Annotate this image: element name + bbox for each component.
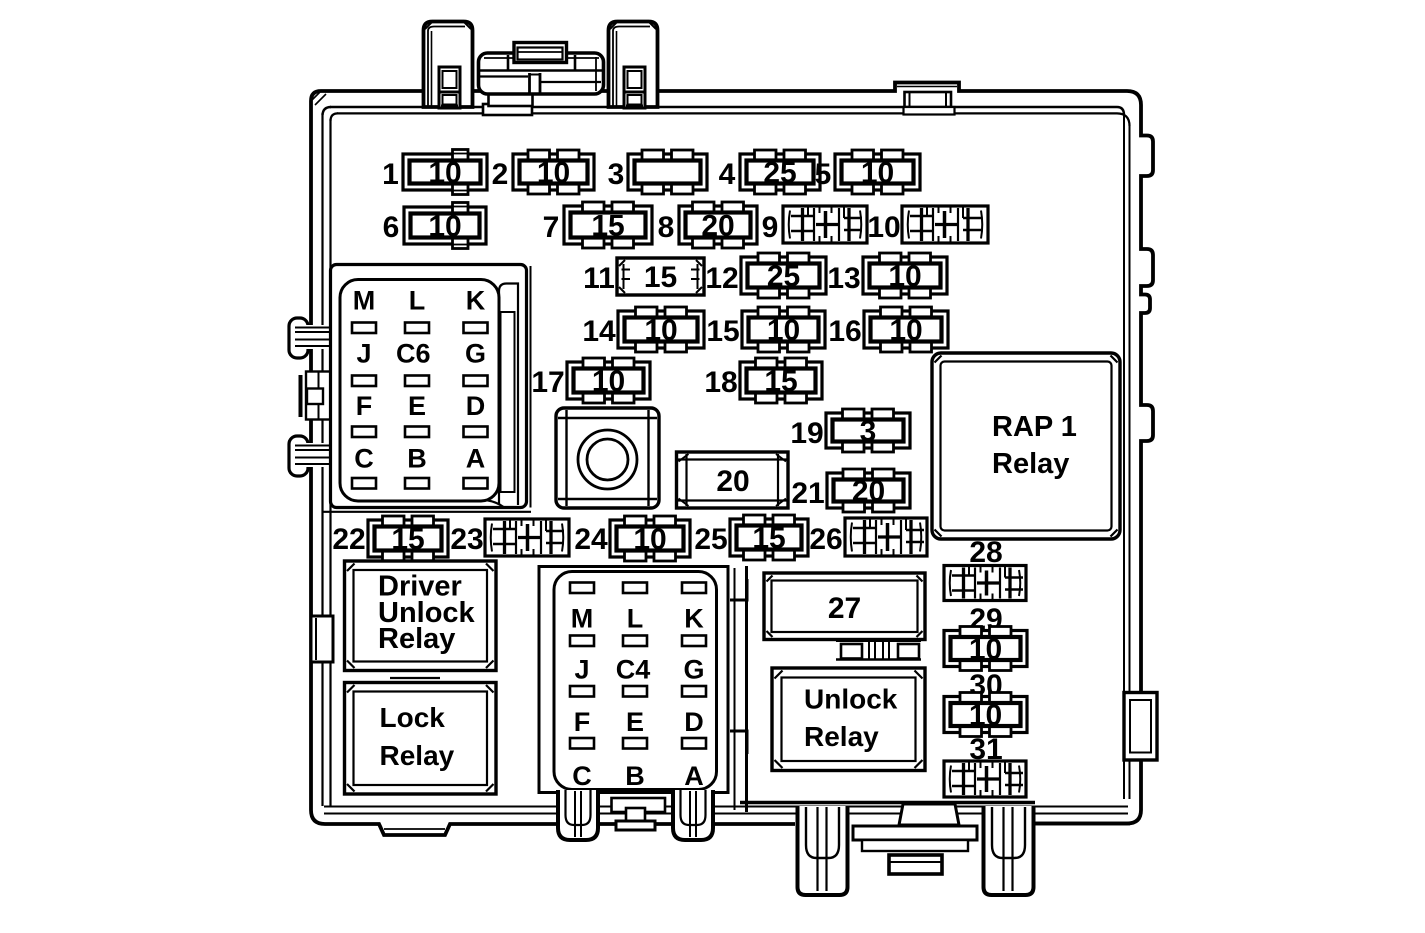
svg-text:D: D [684, 707, 704, 737]
svg-text:J: J [356, 339, 371, 369]
svg-text:L: L [409, 286, 426, 316]
svg-text:10: 10 [428, 157, 461, 190]
svg-text:21: 21 [791, 477, 824, 510]
svg-text:K: K [466, 286, 486, 316]
svg-text:7: 7 [543, 211, 560, 244]
svg-text:6: 6 [383, 211, 400, 244]
svg-text:A: A [684, 761, 704, 791]
svg-text:24: 24 [574, 523, 608, 556]
svg-text:E: E [626, 707, 644, 737]
svg-text:RAP 1: RAP 1 [992, 411, 1077, 443]
svg-text:10: 10 [592, 365, 625, 398]
svg-text:F: F [574, 707, 591, 737]
svg-text:10: 10 [889, 314, 922, 347]
svg-text:25: 25 [767, 260, 800, 293]
svg-text:Relay: Relay [378, 623, 455, 655]
svg-text:20: 20 [716, 465, 749, 498]
svg-text:18: 18 [704, 366, 737, 399]
svg-text:15: 15 [752, 522, 785, 555]
svg-text:10: 10 [867, 211, 900, 244]
svg-text:B: B [407, 444, 427, 474]
svg-text:10: 10 [969, 633, 1002, 666]
svg-text:Relay: Relay [380, 740, 455, 771]
svg-text:10: 10 [861, 157, 894, 190]
svg-text:14: 14 [582, 315, 616, 348]
svg-text:J: J [574, 655, 589, 685]
svg-text:25: 25 [763, 157, 796, 190]
svg-text:E: E [408, 391, 426, 421]
svg-text:G: G [683, 655, 704, 685]
svg-text:K: K [684, 604, 704, 634]
svg-text:19: 19 [790, 417, 823, 450]
svg-text:Relay: Relay [804, 721, 879, 752]
svg-text:G: G [465, 339, 486, 369]
svg-text:Lock: Lock [380, 702, 446, 733]
svg-text:M: M [571, 604, 594, 634]
svg-text:2: 2 [492, 158, 509, 191]
svg-text:15: 15 [706, 315, 739, 348]
svg-text:D: D [466, 391, 486, 421]
svg-text:20: 20 [852, 475, 885, 508]
svg-text:L: L [627, 604, 644, 634]
svg-text:Unlock: Unlock [804, 684, 898, 715]
svg-text:10: 10 [969, 699, 1002, 732]
svg-text:12: 12 [705, 262, 738, 295]
svg-text:10: 10 [537, 157, 570, 190]
svg-text:25: 25 [694, 523, 727, 556]
svg-text:4: 4 [719, 158, 736, 191]
svg-text:5: 5 [815, 158, 832, 191]
svg-text:26: 26 [809, 523, 842, 556]
svg-text:10: 10 [428, 210, 461, 243]
svg-text:3: 3 [860, 415, 877, 448]
svg-text:15: 15 [764, 365, 797, 398]
svg-text:Relay: Relay [992, 448, 1069, 480]
svg-text:15: 15 [644, 261, 677, 294]
svg-text:15: 15 [591, 210, 624, 243]
svg-text:10: 10 [644, 314, 677, 347]
svg-text:27: 27 [828, 592, 861, 625]
svg-text:3: 3 [608, 158, 625, 191]
svg-text:8: 8 [658, 211, 675, 244]
svg-text:A: A [466, 444, 486, 474]
svg-text:C: C [354, 444, 374, 474]
svg-text:13: 13 [827, 262, 860, 295]
svg-text:B: B [625, 761, 645, 791]
svg-text:1: 1 [382, 158, 399, 191]
svg-text:11: 11 [583, 262, 615, 295]
svg-text:15: 15 [391, 523, 424, 556]
svg-text:C: C [572, 761, 592, 791]
svg-text:20: 20 [701, 210, 734, 243]
svg-text:10: 10 [767, 314, 800, 347]
svg-text:23: 23 [450, 523, 483, 556]
svg-text:M: M [353, 286, 376, 316]
svg-text:F: F [356, 391, 373, 421]
svg-text:C4: C4 [616, 655, 651, 685]
svg-text:22: 22 [332, 523, 365, 556]
svg-text:9: 9 [762, 211, 779, 244]
svg-text:16: 16 [828, 315, 861, 348]
svg-text:10: 10 [633, 523, 666, 556]
svg-text:C6: C6 [396, 339, 431, 369]
svg-text:10: 10 [888, 260, 921, 293]
svg-text:17: 17 [531, 366, 564, 399]
